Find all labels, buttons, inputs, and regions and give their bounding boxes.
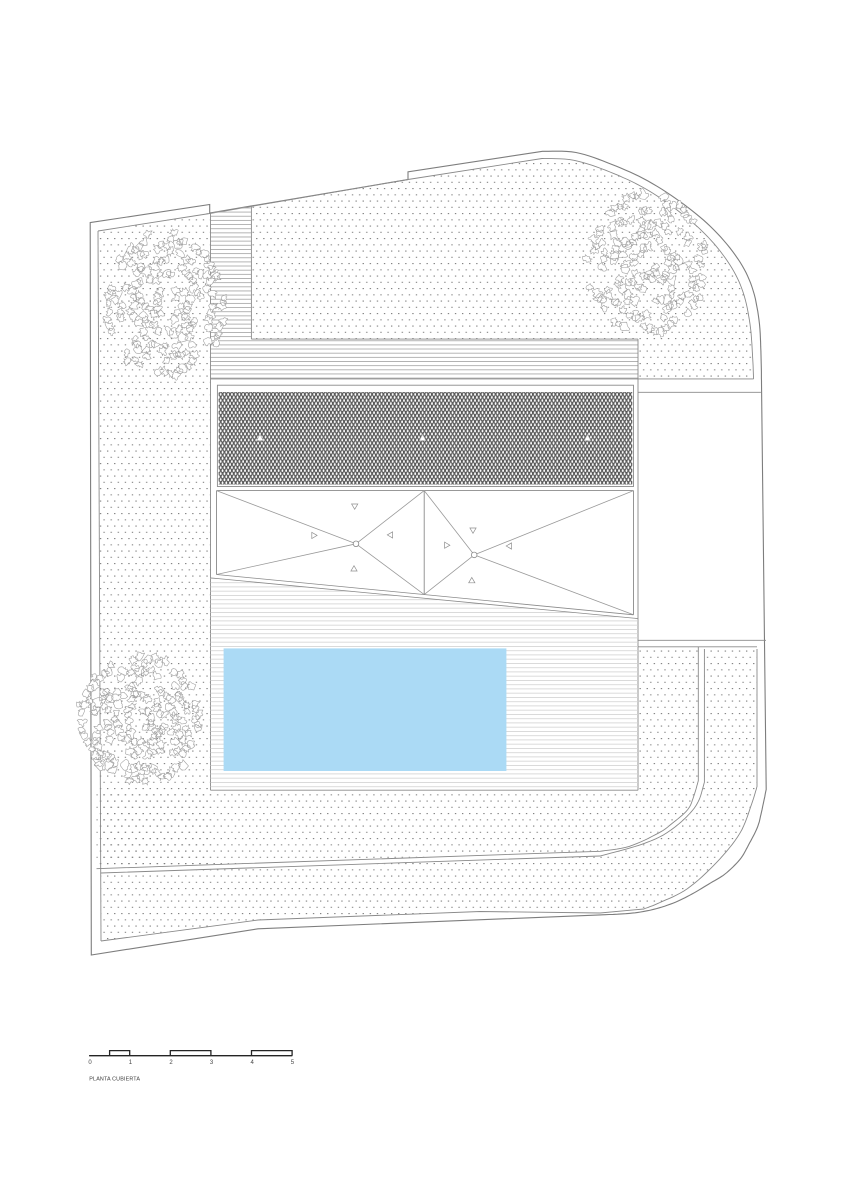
svg-text:PLANTA CUBIERTA: PLANTA CUBIERTA	[89, 1076, 140, 1082]
